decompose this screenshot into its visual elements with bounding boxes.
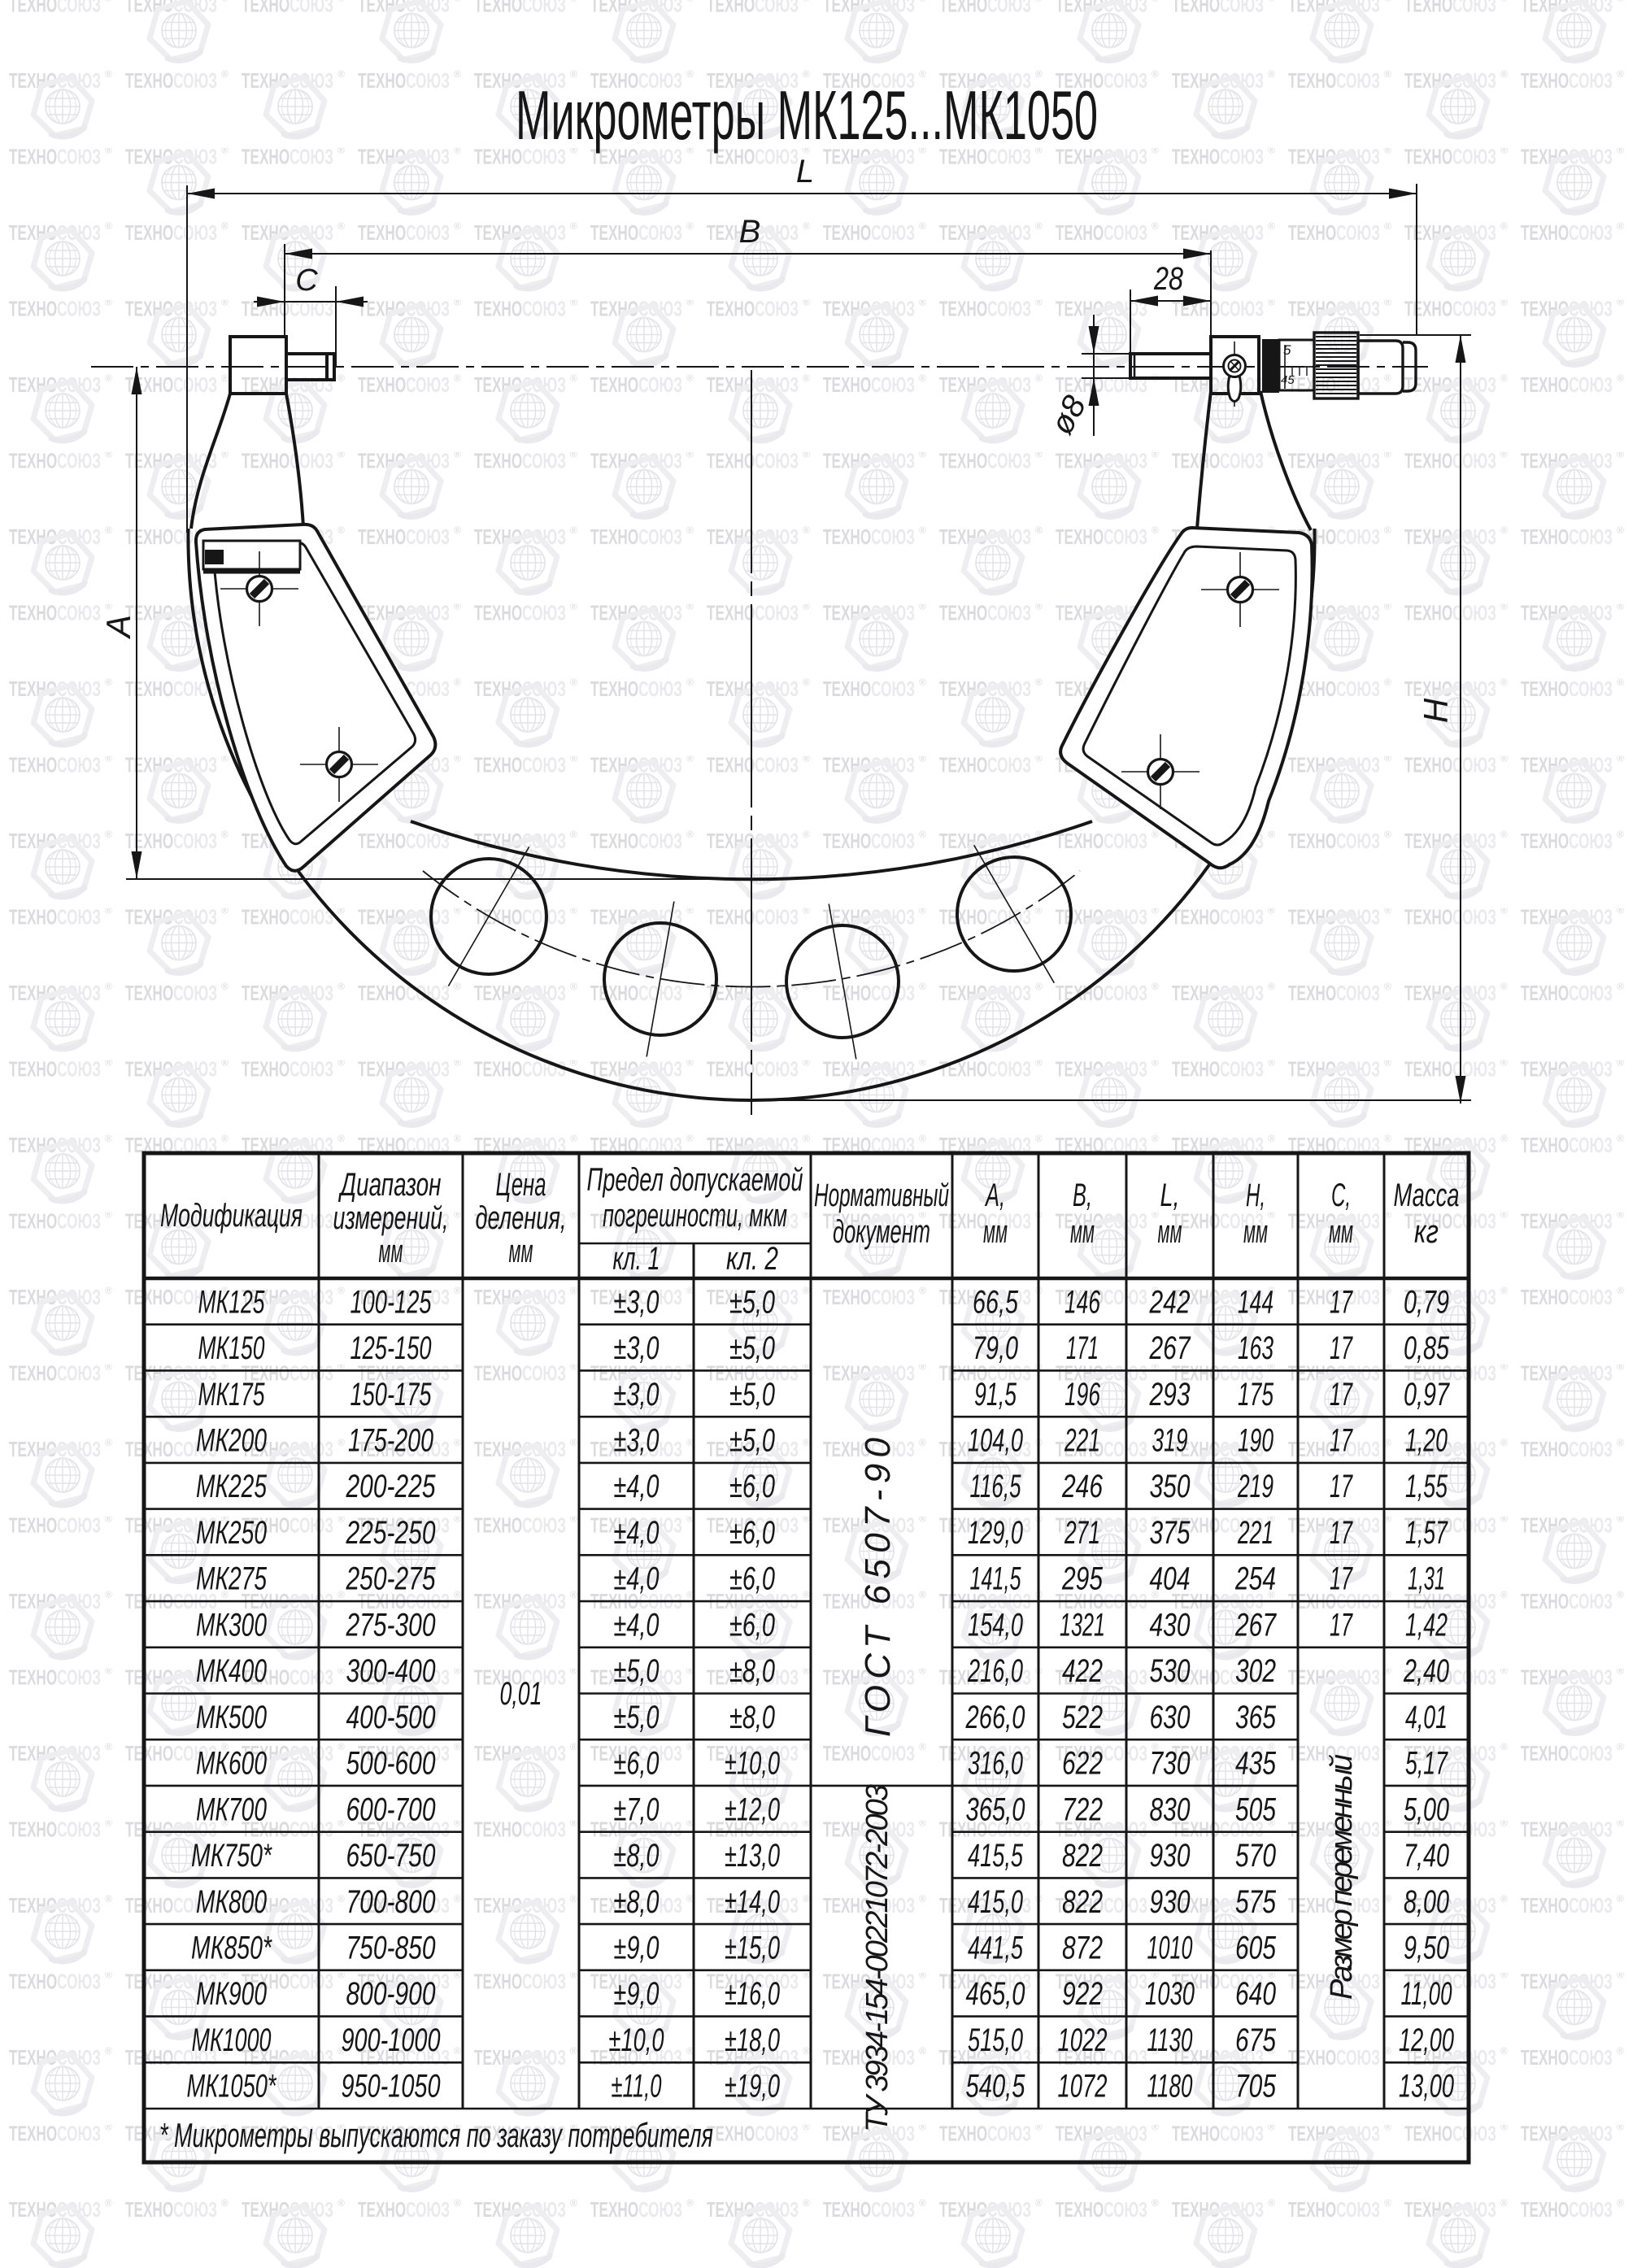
svg-text:830: 830 bbox=[1150, 1791, 1191, 1827]
svg-text:930: 930 bbox=[1150, 1884, 1191, 1920]
svg-text:измерений,: измерений, bbox=[333, 1200, 449, 1236]
svg-text:документ: документ bbox=[833, 1214, 930, 1250]
svg-text:1072: 1072 bbox=[1058, 2069, 1108, 2105]
svg-text:1,20: 1,20 bbox=[1405, 1423, 1448, 1459]
svg-text:12,00: 12,00 bbox=[1399, 2022, 1454, 2058]
svg-text:7,40: 7,40 bbox=[1404, 1838, 1449, 1874]
svg-text:722: 722 bbox=[1062, 1791, 1103, 1827]
svg-text:±5,0: ±5,0 bbox=[729, 1284, 775, 1320]
svg-text:522: 522 bbox=[1062, 1700, 1103, 1735]
svg-text:МК1000: МК1000 bbox=[192, 2022, 272, 2058]
svg-text:Модификация: Модификация bbox=[160, 1198, 303, 1234]
svg-text:17: 17 bbox=[1330, 1469, 1353, 1504]
svg-text:±6,0: ±6,0 bbox=[729, 1515, 775, 1551]
svg-text:400-500: 400-500 bbox=[346, 1700, 436, 1735]
svg-text:45: 45 bbox=[1281, 373, 1295, 387]
svg-text:404: 404 bbox=[1150, 1561, 1191, 1597]
svg-text:316,0: 316,0 bbox=[968, 1746, 1023, 1782]
svg-text:365,0: 365,0 bbox=[966, 1791, 1025, 1827]
svg-text:500-600: 500-600 bbox=[346, 1746, 436, 1782]
svg-text:225-250: 225-250 bbox=[346, 1515, 436, 1551]
svg-text:196: 196 bbox=[1064, 1377, 1100, 1413]
svg-text:С,: С, bbox=[1331, 1178, 1351, 1213]
svg-text:МК850*: МК850* bbox=[191, 1931, 272, 1966]
svg-text:171: 171 bbox=[1066, 1330, 1099, 1366]
svg-text:267: 267 bbox=[1234, 1607, 1277, 1643]
svg-text:17: 17 bbox=[1330, 1515, 1353, 1551]
svg-text:А: А bbox=[99, 615, 137, 640]
svg-text:505: 505 bbox=[1235, 1791, 1277, 1827]
svg-text:±5,0: ±5,0 bbox=[729, 1330, 775, 1366]
svg-text:17: 17 bbox=[1330, 1607, 1353, 1643]
svg-text:822: 822 bbox=[1062, 1884, 1103, 1920]
svg-text:141,5: 141,5 bbox=[970, 1561, 1021, 1597]
svg-text:275-300: 275-300 bbox=[346, 1607, 436, 1643]
svg-text:МК275: МК275 bbox=[196, 1561, 268, 1597]
svg-text:11,00: 11,00 bbox=[1401, 1976, 1452, 2012]
svg-text:±3,0: ±3,0 bbox=[614, 1423, 660, 1459]
svg-text:±8,0: ±8,0 bbox=[729, 1700, 775, 1735]
svg-text:570: 570 bbox=[1235, 1838, 1276, 1874]
svg-text:В,: В, bbox=[1073, 1178, 1092, 1213]
svg-text:±13,0: ±13,0 bbox=[725, 1838, 780, 1874]
svg-text:Диапазон: Диапазон bbox=[338, 1167, 442, 1203]
svg-text:±8,0: ±8,0 bbox=[614, 1838, 660, 1874]
svg-text:±5,0: ±5,0 bbox=[614, 1700, 660, 1735]
svg-text:мм: мм bbox=[1243, 1214, 1268, 1250]
svg-text:430: 430 bbox=[1150, 1607, 1191, 1643]
svg-text:кл. 2: кл. 2 bbox=[726, 1241, 778, 1277]
svg-text:319: 319 bbox=[1152, 1423, 1188, 1459]
svg-text:250-275: 250-275 bbox=[346, 1561, 436, 1597]
svg-text:5,00: 5,00 bbox=[1404, 1791, 1449, 1827]
svg-text:930: 930 bbox=[1150, 1838, 1191, 1874]
svg-text:700-800: 700-800 bbox=[346, 1884, 436, 1920]
svg-text:13,00: 13,00 bbox=[1399, 2069, 1454, 2105]
svg-text:219: 219 bbox=[1237, 1469, 1273, 1504]
svg-text:302: 302 bbox=[1235, 1653, 1276, 1689]
svg-text:Предел допускаемой: Предел допускаемой bbox=[587, 1162, 803, 1198]
svg-text:±14,0: ±14,0 bbox=[725, 1884, 780, 1920]
svg-text:540,5: 540,5 bbox=[966, 2069, 1026, 2105]
svg-text:±12,0: ±12,0 bbox=[725, 1791, 780, 1827]
svg-text:650-750: 650-750 bbox=[346, 1838, 436, 1874]
svg-text:822: 822 bbox=[1062, 1838, 1103, 1874]
svg-text:415,5: 415,5 bbox=[968, 1838, 1024, 1874]
svg-text:±3,0: ±3,0 bbox=[614, 1330, 660, 1366]
svg-text:МК400: МК400 bbox=[196, 1653, 267, 1689]
svg-text:0,85: 0,85 bbox=[1404, 1330, 1450, 1366]
svg-text:±4,0: ±4,0 bbox=[614, 1607, 660, 1643]
svg-text:±10,0: ±10,0 bbox=[609, 2022, 664, 2058]
svg-text:±3,0: ±3,0 bbox=[614, 1284, 660, 1320]
svg-text:деления,: деления, bbox=[476, 1200, 567, 1236]
svg-text:605: 605 bbox=[1235, 1931, 1277, 1966]
svg-text:МК225: МК225 bbox=[196, 1469, 268, 1504]
svg-text:ГОСТ 6507-90: ГОСТ 6507-90 bbox=[858, 1437, 898, 1737]
svg-text:±6,0: ±6,0 bbox=[729, 1607, 775, 1643]
svg-text:216,0: 216,0 bbox=[967, 1653, 1023, 1689]
svg-text:91,5: 91,5 bbox=[974, 1377, 1017, 1413]
svg-text:мм: мм bbox=[1329, 1214, 1353, 1250]
svg-text:0,79: 0,79 bbox=[1404, 1284, 1449, 1320]
svg-text:погрешности, мкм: погрешности, мкм bbox=[603, 1198, 787, 1234]
svg-text:1321: 1321 bbox=[1060, 1607, 1105, 1643]
svg-text:±16,0: ±16,0 bbox=[725, 1976, 780, 2012]
svg-text:163: 163 bbox=[1238, 1330, 1273, 1366]
svg-text:МК200: МК200 bbox=[196, 1423, 267, 1459]
svg-text:750-850: 750-850 bbox=[346, 1931, 436, 1966]
svg-text:±4,0: ±4,0 bbox=[614, 1561, 660, 1597]
svg-text:±10,0: ±10,0 bbox=[725, 1746, 780, 1782]
svg-text:±8,0: ±8,0 bbox=[729, 1653, 775, 1689]
svg-text:±6,0: ±6,0 bbox=[614, 1746, 660, 1782]
svg-text:900-1000: 900-1000 bbox=[342, 2022, 441, 2058]
svg-text:104,0: 104,0 bbox=[968, 1423, 1023, 1459]
svg-text:А,: А, bbox=[985, 1178, 1005, 1213]
svg-text:17: 17 bbox=[1330, 1284, 1353, 1320]
svg-text:800-900: 800-900 bbox=[346, 1976, 436, 2012]
svg-text:17: 17 bbox=[1330, 1423, 1353, 1459]
svg-text:242: 242 bbox=[1149, 1284, 1191, 1320]
svg-text:Масса: Масса bbox=[1394, 1178, 1460, 1213]
svg-text:300-400: 300-400 bbox=[346, 1653, 436, 1689]
svg-text:2,40: 2,40 bbox=[1403, 1653, 1449, 1689]
svg-text:254: 254 bbox=[1234, 1561, 1276, 1597]
svg-text:1030: 1030 bbox=[1145, 1976, 1195, 2012]
svg-text:175: 175 bbox=[1238, 1377, 1273, 1413]
svg-text:190: 190 bbox=[1238, 1423, 1273, 1459]
svg-text:±5,0: ±5,0 bbox=[729, 1423, 775, 1459]
svg-text:8,00: 8,00 bbox=[1404, 1884, 1449, 1920]
svg-text:МК750*: МК750* bbox=[191, 1838, 272, 1874]
svg-text:266,0: 266,0 bbox=[965, 1700, 1025, 1735]
svg-text:1,55: 1,55 bbox=[1405, 1469, 1448, 1504]
svg-text:116,5: 116,5 bbox=[970, 1469, 1021, 1504]
svg-text:441,5: 441,5 bbox=[968, 1931, 1024, 1966]
svg-text:144: 144 bbox=[1238, 1284, 1273, 1320]
svg-text:±9,0: ±9,0 bbox=[614, 1976, 660, 2012]
svg-text:ТУ 3934-154-00221072-2003: ТУ 3934-154-00221072-2003 bbox=[860, 1784, 895, 2132]
svg-text:146: 146 bbox=[1064, 1284, 1100, 1320]
svg-text:Размер переменный: Размер переменный bbox=[1325, 1754, 1359, 2000]
svg-text:9,50: 9,50 bbox=[1404, 1931, 1449, 1966]
svg-text:705: 705 bbox=[1235, 2069, 1277, 2105]
svg-text:0,97: 0,97 bbox=[1404, 1377, 1450, 1413]
svg-text:17: 17 bbox=[1330, 1330, 1353, 1366]
svg-text:C: C bbox=[295, 263, 318, 298]
svg-text:730: 730 bbox=[1150, 1746, 1191, 1782]
svg-text:L,: L, bbox=[1160, 1178, 1180, 1213]
svg-text:МК800: МК800 bbox=[196, 1884, 267, 1920]
svg-text:350: 350 bbox=[1150, 1469, 1191, 1504]
svg-text:221: 221 bbox=[1064, 1423, 1100, 1459]
svg-text:295: 295 bbox=[1061, 1561, 1103, 1597]
svg-text:200-225: 200-225 bbox=[346, 1469, 436, 1504]
svg-text:±15,0: ±15,0 bbox=[725, 1931, 780, 1966]
svg-text:66,5: 66,5 bbox=[973, 1284, 1019, 1320]
svg-text:622: 622 bbox=[1062, 1746, 1103, 1782]
svg-text:±19,0: ±19,0 bbox=[725, 2069, 780, 2105]
svg-text:175-200: 175-200 bbox=[348, 1423, 433, 1459]
svg-text:872: 872 bbox=[1062, 1931, 1103, 1966]
svg-text:Н,: Н, bbox=[1246, 1178, 1265, 1213]
svg-text:МК300: МК300 bbox=[196, 1607, 267, 1643]
svg-text:640: 640 bbox=[1235, 1976, 1276, 2012]
svg-text:17: 17 bbox=[1330, 1377, 1353, 1413]
svg-text:79,0: 79,0 bbox=[973, 1330, 1018, 1366]
svg-text:5: 5 bbox=[1283, 342, 1291, 358]
svg-text:293: 293 bbox=[1149, 1377, 1191, 1413]
svg-text:365: 365 bbox=[1235, 1700, 1277, 1735]
svg-text:±5,0: ±5,0 bbox=[729, 1377, 775, 1413]
svg-text:1022: 1022 bbox=[1058, 2022, 1108, 2058]
svg-text:±6,0: ±6,0 bbox=[729, 1469, 775, 1504]
svg-text:1130: 1130 bbox=[1147, 2022, 1193, 2058]
svg-text:267: 267 bbox=[1149, 1330, 1191, 1366]
svg-text:мм: мм bbox=[509, 1234, 533, 1269]
svg-text:246: 246 bbox=[1061, 1469, 1103, 1504]
svg-text:МК150: МК150 bbox=[198, 1330, 265, 1366]
svg-text:МК175: МК175 bbox=[198, 1377, 265, 1413]
svg-text:600-700: 600-700 bbox=[346, 1791, 436, 1827]
svg-text:125-150: 125-150 bbox=[350, 1330, 432, 1366]
svg-text:422: 422 bbox=[1062, 1653, 1103, 1689]
svg-text:922: 922 bbox=[1062, 1976, 1103, 2012]
svg-text:МК1050*: МК1050* bbox=[187, 2069, 277, 2105]
svg-text:1,42: 1,42 bbox=[1405, 1607, 1448, 1643]
svg-text:100-125: 100-125 bbox=[350, 1284, 433, 1320]
svg-text:1,31: 1,31 bbox=[1408, 1561, 1445, 1597]
svg-text:271: 271 bbox=[1064, 1515, 1100, 1551]
svg-text:675: 675 bbox=[1235, 2022, 1277, 2058]
svg-text:МК600: МК600 bbox=[196, 1746, 267, 1782]
svg-text:1,57: 1,57 bbox=[1405, 1515, 1448, 1551]
svg-text:±4,0: ±4,0 bbox=[614, 1469, 660, 1504]
svg-text:±8,0: ±8,0 bbox=[614, 1884, 660, 1920]
svg-text:±11,0: ±11,0 bbox=[612, 2069, 662, 2105]
svg-text:221: 221 bbox=[1237, 1515, 1273, 1551]
svg-text:465,0: 465,0 bbox=[966, 1976, 1025, 2012]
svg-text:кг: кг bbox=[1414, 1214, 1439, 1250]
svg-text:Н: Н bbox=[1417, 698, 1455, 723]
svg-text:950-1050: 950-1050 bbox=[342, 2069, 441, 2105]
svg-text:мм: мм bbox=[1158, 1214, 1182, 1250]
svg-text:150-175: 150-175 bbox=[350, 1377, 433, 1413]
svg-text:B: B bbox=[739, 214, 761, 250]
svg-text:4,01: 4,01 bbox=[1405, 1700, 1448, 1735]
svg-text:435: 435 bbox=[1235, 1746, 1277, 1782]
svg-text:* Микрометры выпускаются по за: * Микрометры выпускаются по заказу потре… bbox=[159, 2116, 713, 2154]
svg-text:МК500: МК500 bbox=[196, 1700, 267, 1735]
svg-text:±18,0: ±18,0 bbox=[725, 2022, 780, 2058]
svg-text:МК900: МК900 bbox=[196, 1976, 267, 2012]
svg-text:630: 630 bbox=[1150, 1700, 1191, 1735]
svg-text:МК700: МК700 bbox=[196, 1791, 267, 1827]
svg-text:Цена: Цена bbox=[496, 1167, 546, 1203]
svg-text:17: 17 bbox=[1330, 1561, 1353, 1597]
svg-text:129,0: 129,0 bbox=[968, 1515, 1023, 1551]
svg-text:5,17: 5,17 bbox=[1405, 1746, 1448, 1782]
svg-text:±5,0: ±5,0 bbox=[614, 1653, 660, 1689]
svg-text:530: 530 bbox=[1150, 1653, 1191, 1689]
svg-text:МК125: МК125 bbox=[198, 1284, 265, 1320]
svg-text:±9,0: ±9,0 bbox=[614, 1931, 660, 1966]
svg-text:0,01: 0,01 bbox=[500, 1676, 542, 1712]
svg-text:515,0: 515,0 bbox=[968, 2022, 1023, 2058]
svg-text:Микрометры МК125...МК1050: Микрометры МК125...МК1050 bbox=[516, 77, 1098, 155]
svg-text:мм: мм bbox=[983, 1214, 1008, 1250]
svg-text:154,0: 154,0 bbox=[968, 1607, 1023, 1643]
svg-text:Нормативный: Нормативный bbox=[814, 1178, 949, 1213]
svg-text:МК250: МК250 bbox=[196, 1515, 267, 1551]
svg-text:28: 28 bbox=[1153, 261, 1183, 297]
svg-text:±7,0: ±7,0 bbox=[614, 1791, 660, 1827]
svg-text:±3,0: ±3,0 bbox=[614, 1377, 660, 1413]
svg-text:L: L bbox=[796, 154, 814, 189]
svg-text:мм: мм bbox=[1070, 1214, 1095, 1250]
svg-text:1180: 1180 bbox=[1147, 2069, 1193, 2105]
svg-text:415,0: 415,0 bbox=[968, 1884, 1023, 1920]
svg-text:мм: мм bbox=[379, 1234, 403, 1269]
svg-text:575: 575 bbox=[1235, 1884, 1277, 1920]
svg-text:±4,0: ±4,0 bbox=[614, 1515, 660, 1551]
svg-text:375: 375 bbox=[1150, 1515, 1191, 1551]
svg-text:кл. 1: кл. 1 bbox=[613, 1241, 660, 1277]
svg-text:1010: 1010 bbox=[1147, 1931, 1193, 1966]
svg-text:±6,0: ±6,0 bbox=[729, 1561, 775, 1597]
